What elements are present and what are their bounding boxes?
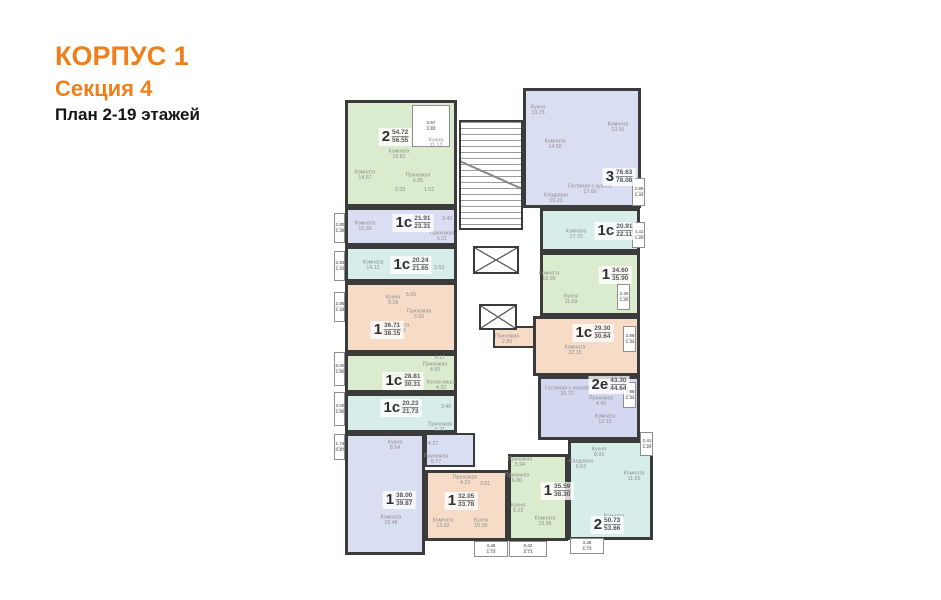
room-area: 13.91 [608,127,629,133]
unit-area-base: 21.91 [414,215,430,223]
unit-area-base: 76.63 [616,169,632,177]
balcony-area-label: 2.411.20 [642,439,651,450]
unit-type: 1 [448,494,456,509]
unit-type: 1 [544,484,552,499]
room-area: 3.81 [480,481,490,487]
balcony: 1.740.87 [334,434,345,460]
unit-type: 1 [374,323,382,338]
room-label: Прихожая6.85 [406,172,430,183]
balcony-area-total: 1.40 [335,228,344,233]
room-area: 10.06 [474,523,488,529]
room-area: 5.65 [406,292,416,298]
unit-type: 1 [602,268,610,283]
unit-area-total: 56.55 [392,138,408,145]
unit-label-1c-2091: 1с20.9122.11 [595,222,636,240]
room-area: 13.75 [531,110,545,116]
unit-area-total: 21.73 [402,409,418,416]
room-label: Кладовая10.23 [544,192,568,203]
balcony-area-total: 1.34 [625,395,634,400]
room-label: Комната14.50 [545,138,566,149]
balcony-area-total: 1.73 [582,546,591,551]
room-area: 15.30 [355,226,376,232]
balcony-area-total: 1.50 [335,369,344,374]
unit-area-base: 50.73 [604,517,620,525]
room-label: Прихожая5.77 [424,453,448,464]
room-label: 3.40 [442,216,452,222]
unit-type: 2е [592,378,609,393]
elevator-shaft [479,304,517,330]
room-area: 3.40 [442,216,452,222]
balcony-area-label: 5.422.71 [523,544,532,555]
unit-area-total: 38.15 [384,331,400,338]
unit-area-base: 32.05 [458,493,474,501]
balcony: 2.891.44 [334,292,345,322]
unit-area-base: 20.24 [412,257,428,265]
unit-type: 1с [576,326,593,341]
unit-area-base: 28.81 [404,373,420,381]
unit-label-1-3800: 138.0039.87 [383,491,416,509]
unit-type: 1с [384,401,401,416]
balcony-area-total: 0.87 [335,447,344,452]
unit-label-1-3559: 135.5938.30 [541,482,574,500]
unit-area-base: 43.30 [610,377,626,385]
room-label: Комната15.30 [355,220,376,231]
room-label: 3.33 [395,187,405,193]
room-label: 3.81 [480,481,490,487]
balcony: 3.461.73 [570,538,604,554]
room-area: 6.63 [569,464,593,470]
room-area: 5.21 [428,427,452,433]
balcony: 3.461.73 [474,541,508,557]
unit-areas: 32.0533.78 [458,493,474,509]
unit-area-total: 44.64 [610,386,626,393]
room-label: Комната13.91 [608,121,629,132]
room-area: 15.48 [381,520,402,526]
room-label: Прихожая4.45 [589,395,613,406]
balcony-area-total: 1.73 [486,549,495,554]
unit-type: 1с [386,374,403,389]
room-label: Комната15.81 [389,148,410,159]
room-area: 3.53 [434,265,444,271]
unit-type: 1с [394,258,411,273]
room-label: Комната22.15 [565,344,586,355]
balcony: 2.831.41 [334,251,345,281]
unit-area-total: 38.30 [554,492,570,499]
room-label: Комната12.15 [595,413,616,424]
room-label: Кладовая6.63 [569,458,593,469]
unit-area-total: 23.31 [414,224,430,231]
room-area: 6.85 [406,178,430,184]
room-area: 8.93 [592,452,606,458]
room-label: 4.27 [428,441,438,447]
room-label: Комната14.57 [355,169,376,180]
unit-areas: 43.3044.64 [610,377,626,393]
room-label: Комната11.55 [624,470,645,481]
balcony-area-label: 3.461.73 [582,541,591,552]
unit-area-total: 30.31 [404,382,420,389]
balcony-area-label: 5.001.50 [335,364,344,375]
room-area: 14.57 [355,175,376,181]
unit-areas: 35.5938.30 [554,483,570,499]
balcony: 5.001.50 [334,352,345,386]
unit-areas: 50.7353.66 [604,517,620,533]
room-area: 11.69 [564,299,578,305]
apartment-1-3671 [345,282,457,353]
room-area: 5.65 [407,314,431,320]
unit-label-1c-2930: 1с29.3030.64 [573,324,614,342]
room-label: Прихожая6.80 [505,472,529,483]
unit-label-1-3205: 132.0533.78 [445,492,478,510]
room-label: Комната14.12 [363,259,384,270]
room-area: 20.72 [545,391,589,397]
room-area: 9.28 [386,300,400,306]
section-title: Секция 4 [55,74,200,104]
room-area: 5.94 [508,462,532,468]
unit-areas: 20.2421.65 [412,257,428,273]
room-area: 4.22 [453,480,477,486]
unit-label-1c-2881: 1с28.8130.31 [383,372,424,390]
room-area: 4.50 [423,367,447,373]
balcony-area-label: 2.891.44 [335,302,344,313]
balcony-area-total: 1.20 [619,297,628,302]
room-area: 13.82 [433,523,454,529]
unit-areas: 36.7138.15 [384,322,400,338]
unit-area-base: 34.60 [612,267,628,275]
floor-plan: 254.7256.55Комната15.81Кухня11.17Комната… [333,86,667,582]
balcony: 2.411.20 [640,432,653,456]
balcony-area-label: 2.881.34 [625,334,634,345]
unit-area-base: 54.72 [392,129,408,137]
room-label: 3.53 [434,265,444,271]
unit-type: 3 [606,170,614,185]
balcony-area-label: 2.831.41 [335,261,344,272]
room-area: 10.23 [544,198,568,204]
unit-areas: 54.7256.55 [392,129,408,145]
balcony-area-label: 2.851.43 [634,187,643,198]
room-label: Прихожая5.21 [430,230,454,241]
page: КОРПУС 1 Секция 4 План 2-19 этажей 254.7… [0,0,941,600]
room-label: Комната15.95 [535,515,556,526]
unit-areas: 29.3030.64 [594,325,610,341]
unit-label-1c-2191: 1с21.9123.31 [393,214,434,232]
room-label: Кухня11.69 [564,293,578,304]
unit-areas: 28.8130.31 [404,373,420,389]
room-area: 5.77 [424,459,448,465]
unit-label-3-7663: 376.6378.08 [603,168,636,186]
room-area: 1.52 [424,187,434,193]
unit-type: 1с [598,224,615,239]
unit-label-1-3460: 134.6035.90 [599,266,632,284]
unit-area-total: 35.90 [612,276,628,283]
room-area: 3.40 [441,404,451,410]
balcony: 5.422.71 [509,541,547,557]
balcony-area-label: 3.001.50 [335,404,344,415]
room-area: 15.95 [535,521,556,527]
room-label: Комната15.48 [381,514,402,525]
room-area: 2.80 [495,339,519,345]
unit-label-2-5073: 250.7353.66 [591,516,624,534]
balcony-area-label: 1.740.87 [335,442,344,453]
unit-label-2e-4330: 2е43.3044.64 [589,376,630,394]
building-title: КОРПУС 1 [55,40,200,74]
balcony-area-total: 1.83 [426,126,435,131]
unit-type: 1 [386,493,394,508]
balcony-area-label: 3.671.83 [426,121,435,132]
room-label: Прихожая5.21 [428,421,452,432]
unit-label-1c-2023: 1с20.2321.73 [381,399,422,417]
unit-type: 2 [382,130,390,145]
unit-area-total: 30.64 [594,334,610,341]
unit-area-base: 36.71 [384,322,400,330]
balcony-area-total: 1.43 [634,192,643,197]
unit-areas: 20.2321.73 [402,400,418,416]
room-area: 12.15 [595,419,616,425]
room-area: 4.45 [589,401,613,407]
room-label: Кухня-ниша4.32 [427,379,456,390]
room-area: 4.32 [427,385,456,391]
room-label: Кухня13.75 [531,104,545,115]
room-label: Прихожая4.50 [423,361,447,372]
room-label: Прихожая2.80 [495,333,519,344]
unit-area-total: 78.08 [616,178,632,185]
unit-area-base: 20.23 [402,400,418,408]
room-label: Гостиная с кухней20.72 [545,385,589,396]
unit-area-base: 38.00 [396,492,412,500]
balcony-area-total: 1.34 [625,339,634,344]
balcony-area-total: 1.50 [335,409,344,414]
room-area: 9.23 [511,508,525,514]
floors-subtitle: План 2-19 этажей [55,103,200,128]
unit-label-1-3671: 136.7138.15 [371,321,404,339]
unit-area-base: 20.91 [616,223,632,231]
room-area: 22.15 [565,350,586,356]
unit-label-2-5472: 254.7256.55 [379,128,412,146]
room-label: 5.65 [406,292,416,298]
elevator-shaft [473,246,519,274]
unit-areas: 76.6378.08 [616,169,632,185]
plan-header: КОРПУС 1 Секция 4 План 2-19 этажей [55,40,200,128]
unit-area-total: 39.87 [396,501,412,508]
room-area: 15.81 [389,154,410,160]
unit-area-total: 53.66 [604,526,620,533]
unit-area-total: 21.65 [412,266,428,273]
unit-area-total: 22.11 [616,232,632,239]
room-label: Кухня8.93 [592,446,606,457]
balcony: 2.401.20 [617,284,630,310]
unit-area-base: 35.59 [554,483,570,491]
balcony-area-total: 1.20 [642,444,651,449]
room-label: Прихожая4.22 [453,474,477,485]
room-area: 5.21 [430,236,454,242]
room-area: 6.80 [505,478,529,484]
unit-areas: 21.9123.31 [414,215,430,231]
room-label: Кухня10.06 [474,517,488,528]
room-area: 17.70 [566,234,587,240]
balcony-area-label: 3.461.73 [486,544,495,555]
balcony-area-total: 2.71 [523,549,532,554]
unit-areas: 38.0039.87 [396,492,412,508]
unit-label-1c-2024: 1с20.2421.65 [391,256,432,274]
unit-areas: 34.6035.90 [612,267,628,283]
room-label: Кухня9.23 [511,502,525,513]
room-area: 8.54 [388,445,402,451]
room-label: 3.40 [441,404,451,410]
unit-area-base: 29.30 [594,325,610,333]
room-label: Прихожая5.65 [407,308,431,319]
room-label: Кухня11.17 [429,137,443,148]
balcony-area-label: 2.401.20 [619,292,628,303]
room-label: Кухня8.54 [388,439,402,450]
room-area: 3.33 [395,187,405,193]
room-area: 14.12 [363,265,384,271]
room-area: 15.95 [539,276,560,282]
balcony-area-total: 1.41 [335,266,344,271]
balcony-area-total: 1.44 [335,307,344,312]
room-area: 14.50 [545,144,566,150]
room-label: Комната15.95 [539,270,560,281]
room-label: Комната13.82 [433,517,454,528]
balcony: 2.881.34 [623,326,636,352]
unit-type: 2 [594,518,602,533]
balcony: 2.801.40 [334,213,345,243]
unit-area-total: 33.78 [458,502,474,509]
room-label: Прихожая5.94 [508,456,532,467]
room-area: 4.27 [428,441,438,447]
room-label: Комната17.70 [566,228,587,239]
unit-areas: 20.9122.11 [616,223,632,239]
room-area: 11.17 [429,143,443,149]
room-label: 1.52 [424,187,434,193]
unit-type: 1с [396,216,413,231]
room-label: Кухня9.28 [386,294,400,305]
room-area: 11.55 [624,476,645,482]
balcony-area-label: 2.801.40 [335,223,344,234]
room-area: 17.60 [568,189,612,195]
stairwell [459,120,523,230]
balcony: 3.001.50 [334,392,345,426]
